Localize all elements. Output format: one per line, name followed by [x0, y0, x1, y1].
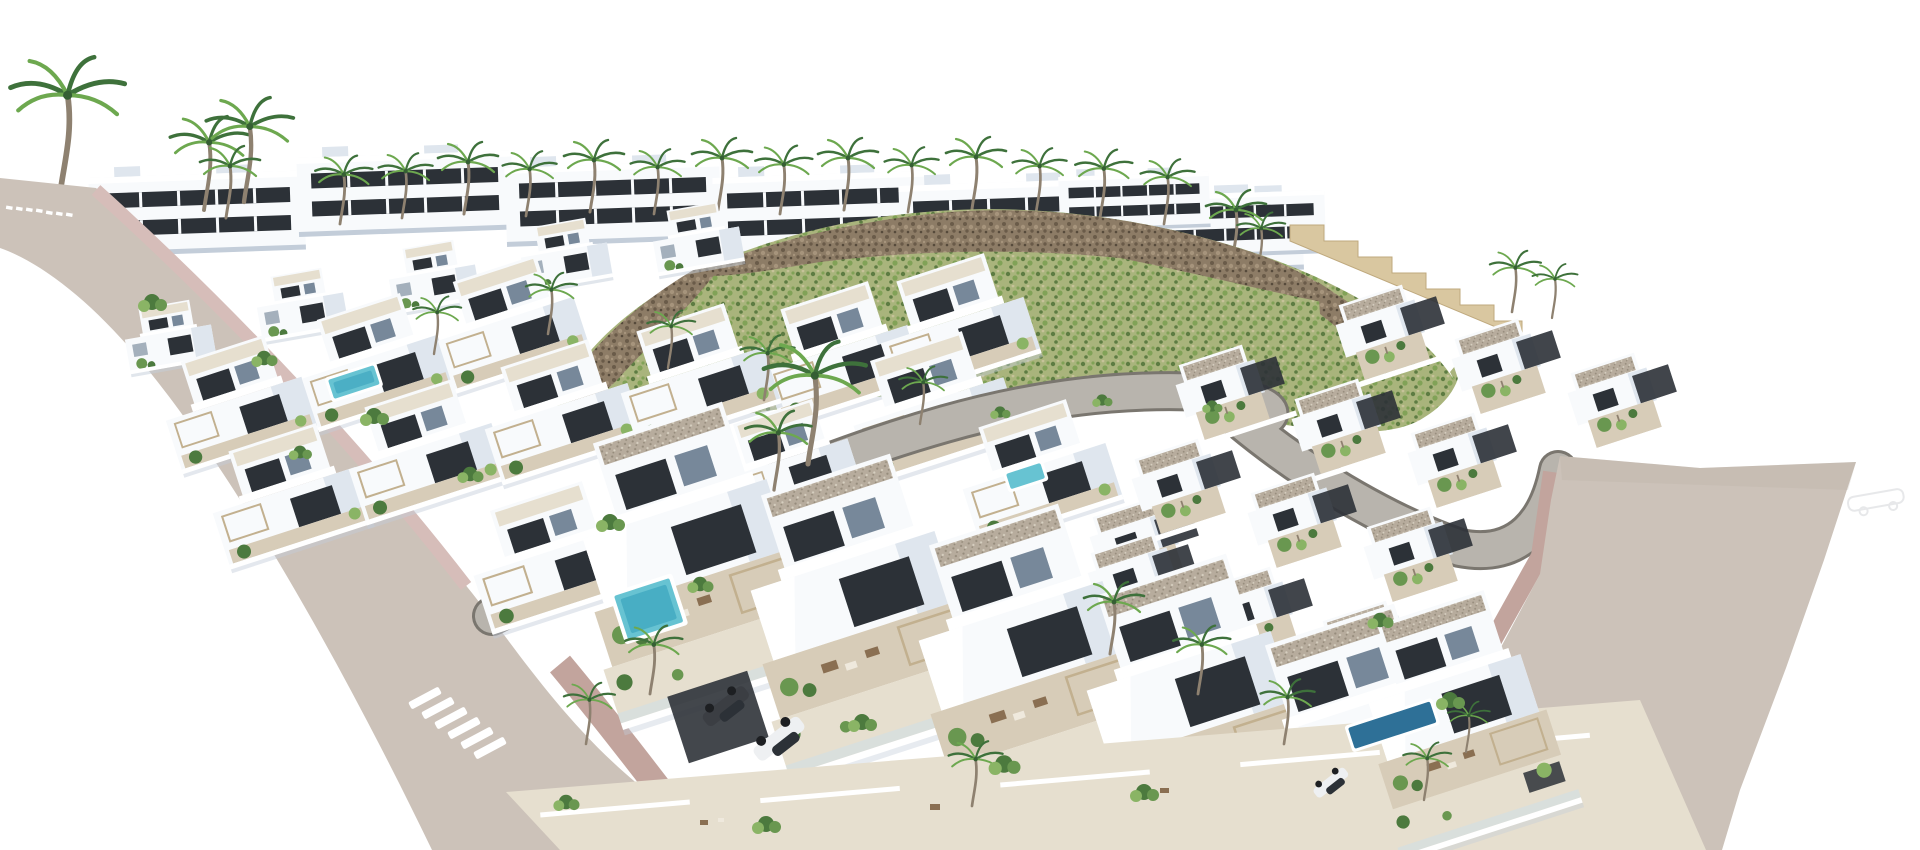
render-canvas: Aerial 3D architectural rendering of a h… [0, 0, 1920, 850]
scene-svg [0, 0, 1920, 850]
